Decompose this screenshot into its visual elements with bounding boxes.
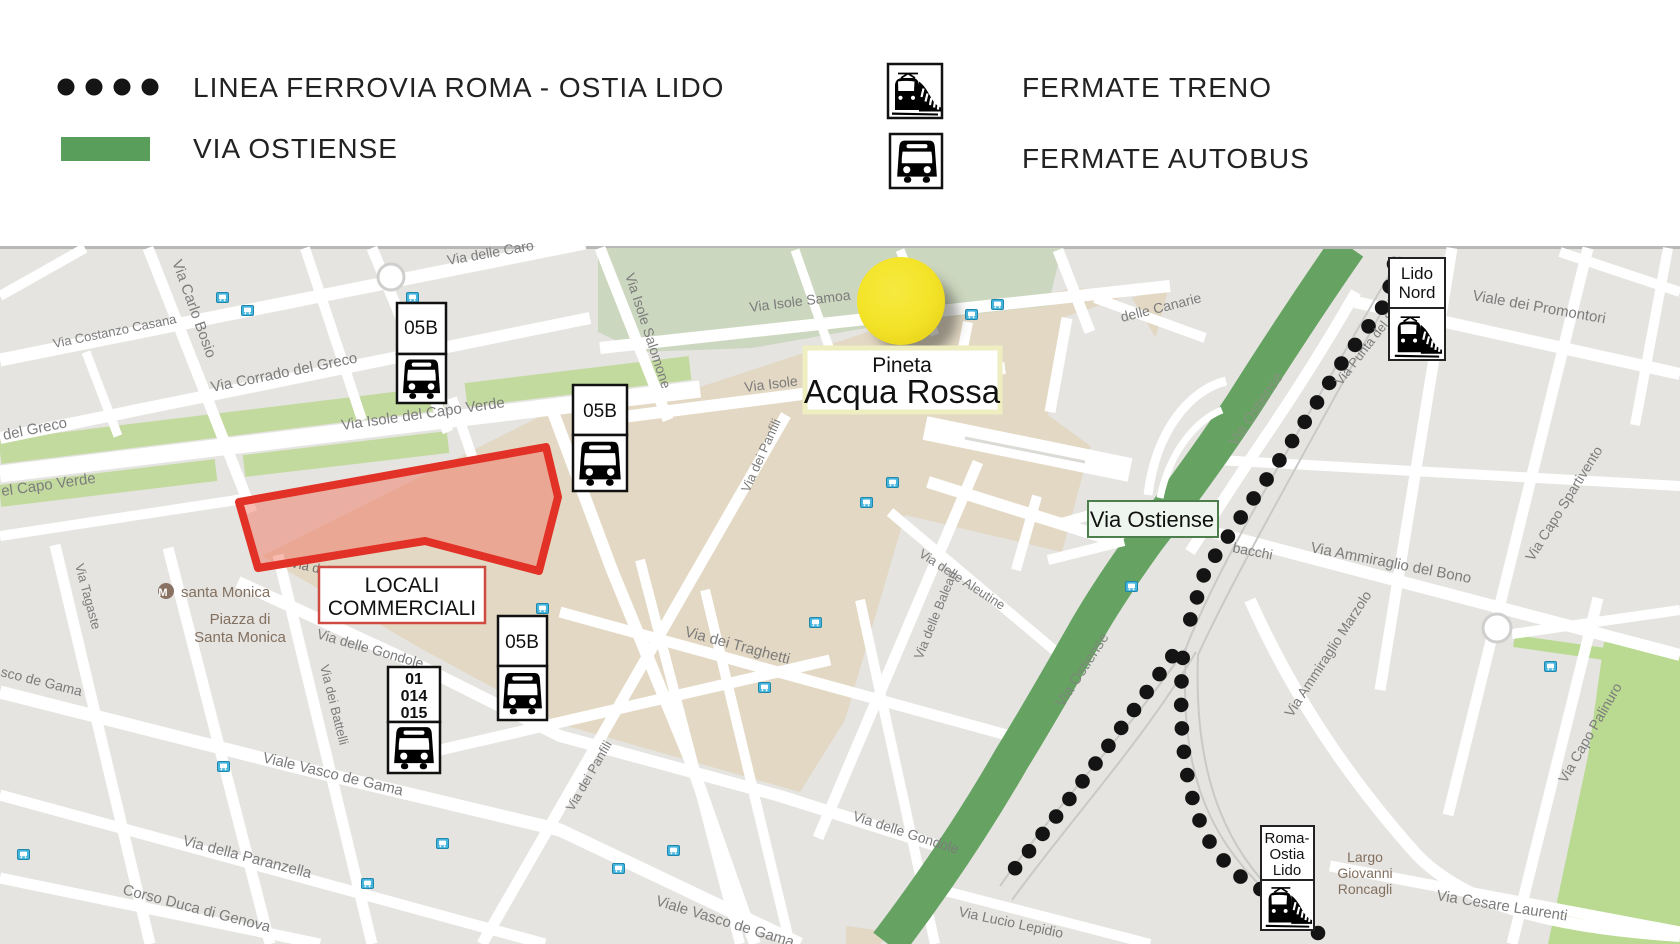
svg-text:Lido: Lido xyxy=(1401,264,1433,283)
svg-text:Giovanni: Giovanni xyxy=(1337,865,1392,881)
svg-text:VIA OSTIENSE: VIA OSTIENSE xyxy=(193,133,398,164)
svg-text:05B: 05B xyxy=(505,632,539,653)
svg-text:05B: 05B xyxy=(583,401,617,422)
svg-text:Santa Monica: Santa Monica xyxy=(194,629,286,646)
svg-text:LOCALI: LOCALI xyxy=(365,574,440,597)
svg-text:Ostia: Ostia xyxy=(1269,846,1305,863)
svg-text:Roma-: Roma- xyxy=(1264,830,1309,847)
svg-text:M: M xyxy=(158,587,167,599)
svg-text:05B: 05B xyxy=(404,318,438,339)
svg-text:015: 015 xyxy=(401,705,428,722)
svg-text:LINEA FERROVIA ROMA - OSTIA LI: LINEA FERROVIA ROMA - OSTIA LIDO xyxy=(193,72,724,103)
svg-text:FERMATE AUTOBUS: FERMATE AUTOBUS xyxy=(1022,143,1310,174)
svg-text:Lido: Lido xyxy=(1273,862,1301,879)
svg-text:Nord: Nord xyxy=(1399,283,1436,302)
svg-text:Largo: Largo xyxy=(1347,849,1383,865)
svg-text:COMMERCIALI: COMMERCIALI xyxy=(328,597,476,620)
svg-text:Acqua Rossa: Acqua Rossa xyxy=(804,373,1001,410)
svg-text:Via Ostiense: Via Ostiense xyxy=(1090,507,1214,532)
svg-text:FERMATE TRENO: FERMATE TRENO xyxy=(1022,72,1272,103)
svg-text:014: 014 xyxy=(401,688,428,705)
svg-text:Roncagli: Roncagli xyxy=(1338,881,1392,897)
svg-text:Piazza di: Piazza di xyxy=(210,611,271,628)
svg-text:santa Monica: santa Monica xyxy=(181,584,271,601)
svg-text:01: 01 xyxy=(405,671,423,688)
